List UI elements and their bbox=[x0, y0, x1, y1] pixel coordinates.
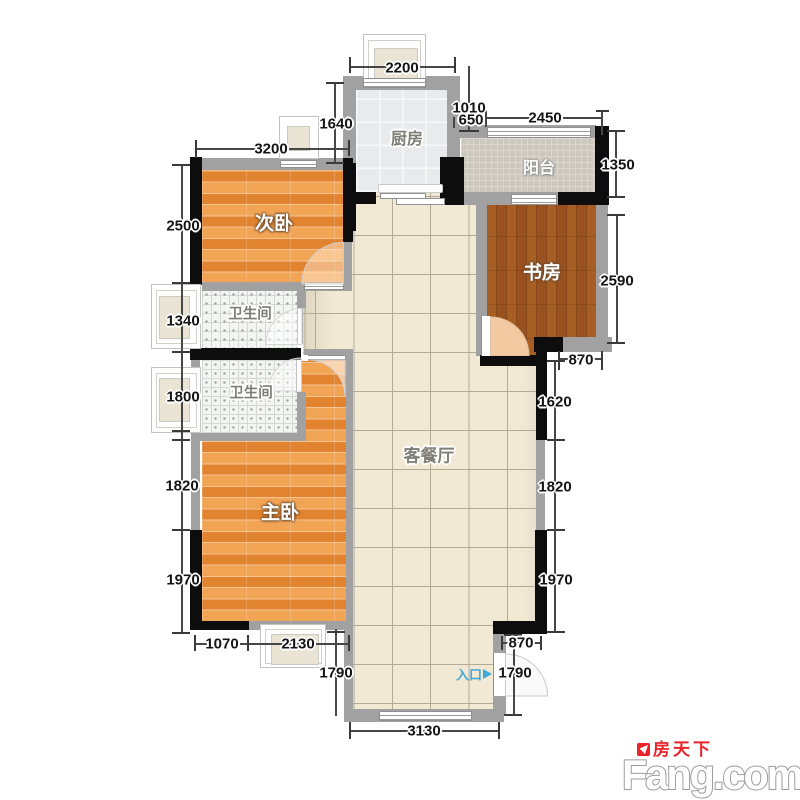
svg-text:Fang.com: Fang.com bbox=[622, 751, 800, 798]
